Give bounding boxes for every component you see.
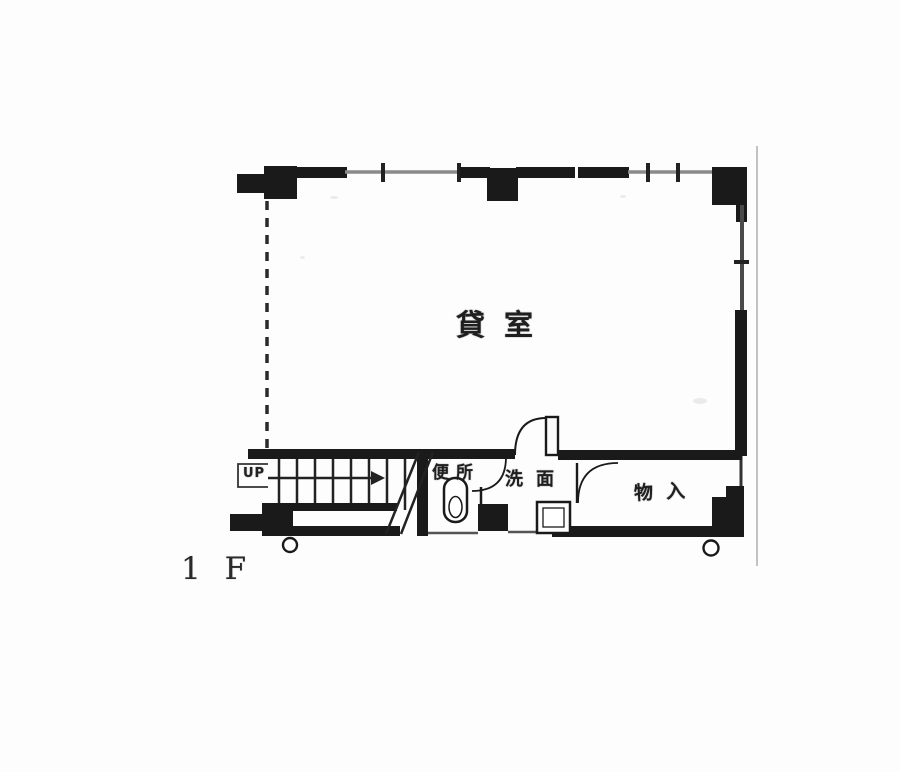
sink-counter-inner	[543, 508, 564, 527]
window-tick	[676, 163, 680, 182]
column-top-left	[264, 166, 297, 199]
stair-direction-arrow-head	[371, 471, 385, 485]
scan-speck	[300, 256, 305, 259]
window-tick	[381, 163, 385, 182]
floor-plan-page: 貸室 便所 洗面 物入 UP 1 F	[0, 0, 900, 772]
understair-top-bar	[290, 503, 397, 511]
main-room-door-panel	[546, 417, 558, 455]
bottom-wall-right	[552, 526, 714, 537]
door-stop-circle-left	[283, 538, 297, 552]
top-wall-segment	[578, 167, 629, 178]
stair-break-line	[386, 452, 419, 534]
stairs-up-label: UP	[243, 466, 265, 481]
main-room-door-arc	[515, 418, 546, 455]
top-wall	[237, 163, 747, 222]
top-wall-segment	[516, 167, 575, 178]
storage-door-arc	[578, 463, 618, 503]
top-wall-segment	[295, 167, 347, 178]
top-wall-segment	[460, 167, 490, 178]
scan-speck	[693, 398, 707, 404]
bottom-wall-under-stairs	[262, 526, 400, 536]
stair-toilet-divider-wall	[417, 452, 428, 536]
scan-speck	[330, 196, 338, 199]
main-room-label: 貸室	[456, 302, 552, 344]
column-top-middle	[487, 168, 518, 201]
column-bottom-middle	[478, 504, 508, 531]
band-top-wall-right	[558, 450, 742, 460]
scan-speck	[620, 195, 626, 198]
door-stop-circle-right	[704, 541, 719, 556]
column-bottom-right-ext	[726, 486, 744, 508]
bottom-left-wall-stub	[230, 514, 262, 531]
washroom-label: 洗面	[505, 465, 567, 491]
toilet-bowl	[449, 497, 462, 518]
right-wall	[712, 205, 749, 537]
toilet-room-label: 便所	[432, 458, 480, 483]
window-tick	[646, 163, 650, 182]
storage-room-label: 物入	[633, 475, 698, 505]
floor-number-label: 1 F	[181, 551, 253, 587]
right-window-tick	[734, 260, 749, 264]
right-wall-thick	[735, 310, 747, 456]
floor-plan-drawing	[0, 0, 900, 772]
